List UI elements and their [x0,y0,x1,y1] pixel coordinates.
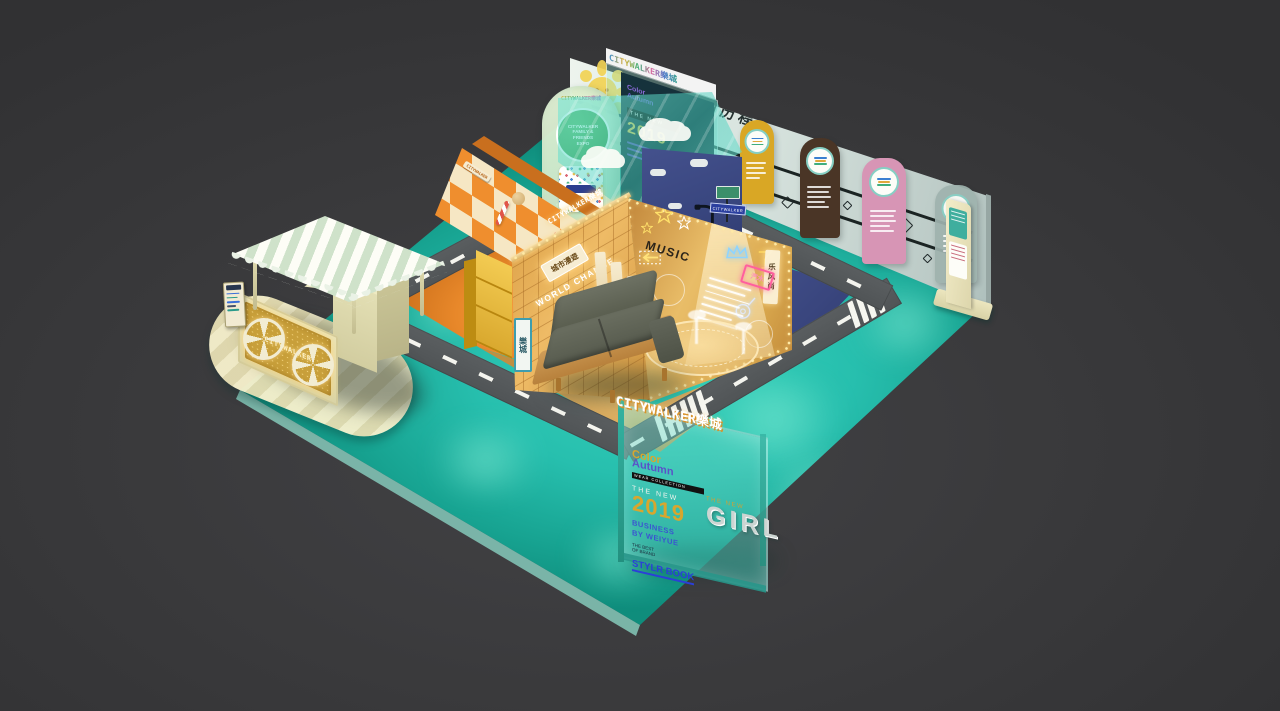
palm-decor [695,318,698,344]
star-mark-icon [923,254,933,264]
milestone-badge [806,147,834,175]
gold-cabinet [476,250,512,359]
star-icon [641,222,653,234]
cart-menu-board [223,281,246,327]
timeline-arch-pink [862,158,906,264]
palm-decor [735,322,752,331]
ball-decor-icon [512,192,525,205]
cloud-icon [690,159,708,167]
milestone-badge [869,167,899,197]
side-sign-text: 樂城 [518,337,529,353]
timeline-arch-yellow [740,120,774,204]
palm-decor [688,310,706,320]
sofa-leg [556,378,561,391]
blue-frame-side-sign: 樂城 [514,318,532,372]
road-sign [716,186,740,199]
milestone-badge [745,129,770,154]
menu-header [226,285,241,291]
right-standee-panel [946,198,971,309]
booth-render-scene: 公司历程 ▶ 公司历程 [0,0,1280,711]
cloud-icon [650,169,666,176]
street-name-text: CITYWALKER [712,205,743,213]
front-panel-post-left [618,398,624,562]
sofa-leg [610,390,615,403]
cloud-icon [668,203,682,209]
timeline-arch-brown [800,138,840,238]
cloud-icon [639,126,691,141]
cloud-icon [581,154,625,168]
floor-glow-spot [420,430,550,490]
star-mark-icon [843,201,853,211]
star-icon [677,216,691,230]
standee-poster-teal [949,207,967,240]
wall-end-cap [986,194,991,312]
cart-wheel-icon [292,344,334,386]
neon-crown-icon [725,244,749,261]
sofa-leg [662,368,667,381]
standee-poster-white [949,241,967,280]
marquee-bulbs-right [785,246,793,350]
palm-decor [742,330,745,354]
pink-neon-text: 汽水 [749,271,765,285]
cart-wheel-icon [243,318,285,360]
